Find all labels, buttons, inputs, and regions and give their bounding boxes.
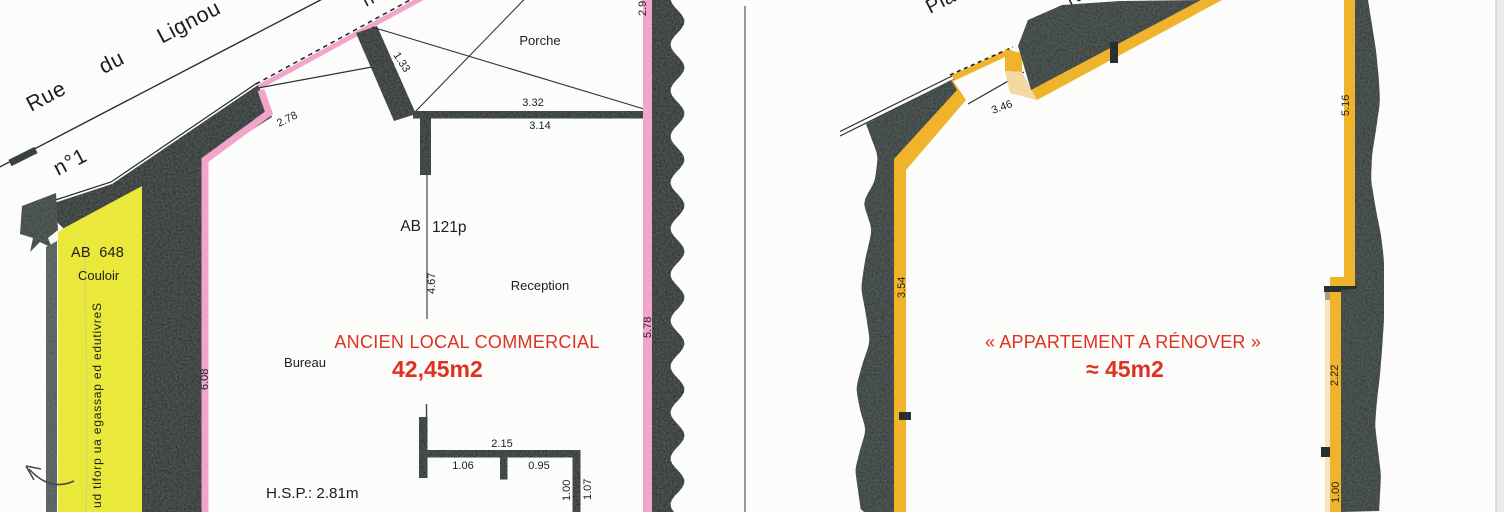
svg-text:ANCIEN LOCAL COMMERCIAL: ANCIEN LOCAL COMMERCIAL <box>334 332 599 352</box>
svg-text:3.54: 3.54 <box>896 277 908 298</box>
svg-text:2.96: 2.96 <box>637 0 649 16</box>
svg-text:Porche: Porche <box>519 33 560 48</box>
svg-text:3.14: 3.14 <box>529 120 550 132</box>
svg-text:Couloir: Couloir <box>78 268 120 283</box>
svg-text:ud tiforp ua egassap ed edutiv: ud tiforp ua egassap ed edutivreS <box>90 302 104 508</box>
svg-text:AB 648: AB 648 <box>71 245 124 261</box>
svg-text:42,45m2: 42,45m2 <box>392 356 483 382</box>
svg-text:0.95: 0.95 <box>528 460 549 472</box>
svg-text:2.15: 2.15 <box>491 438 512 450</box>
svg-text:1.07: 1.07 <box>582 479 594 500</box>
svg-text:1.00: 1.00 <box>1330 482 1342 503</box>
svg-text:« APPARTEMENT A RÉNOVER »: « APPARTEMENT A RÉNOVER » <box>985 332 1261 352</box>
svg-text:3.32: 3.32 <box>522 97 543 109</box>
svg-text:Reception: Reception <box>511 278 570 293</box>
svg-text:6.08: 6.08 <box>199 369 211 390</box>
svg-text:H.S.P.: 2.81m: H.S.P.: 2.81m <box>266 485 359 502</box>
svg-text:Bureau: Bureau <box>284 355 326 370</box>
svg-text:2.22: 2.22 <box>1329 365 1341 386</box>
svg-text:AB: AB <box>400 218 421 235</box>
svg-text:5.16: 5.16 <box>1340 95 1352 116</box>
svg-text:≈ 45m2: ≈ 45m2 <box>1086 356 1164 382</box>
svg-text:5.78: 5.78 <box>642 317 654 338</box>
svg-text:1.00: 1.00 <box>561 480 573 501</box>
svg-text:1.06: 1.06 <box>452 460 473 472</box>
svg-text:4.67: 4.67 <box>426 273 438 294</box>
svg-text:121p: 121p <box>432 219 466 236</box>
